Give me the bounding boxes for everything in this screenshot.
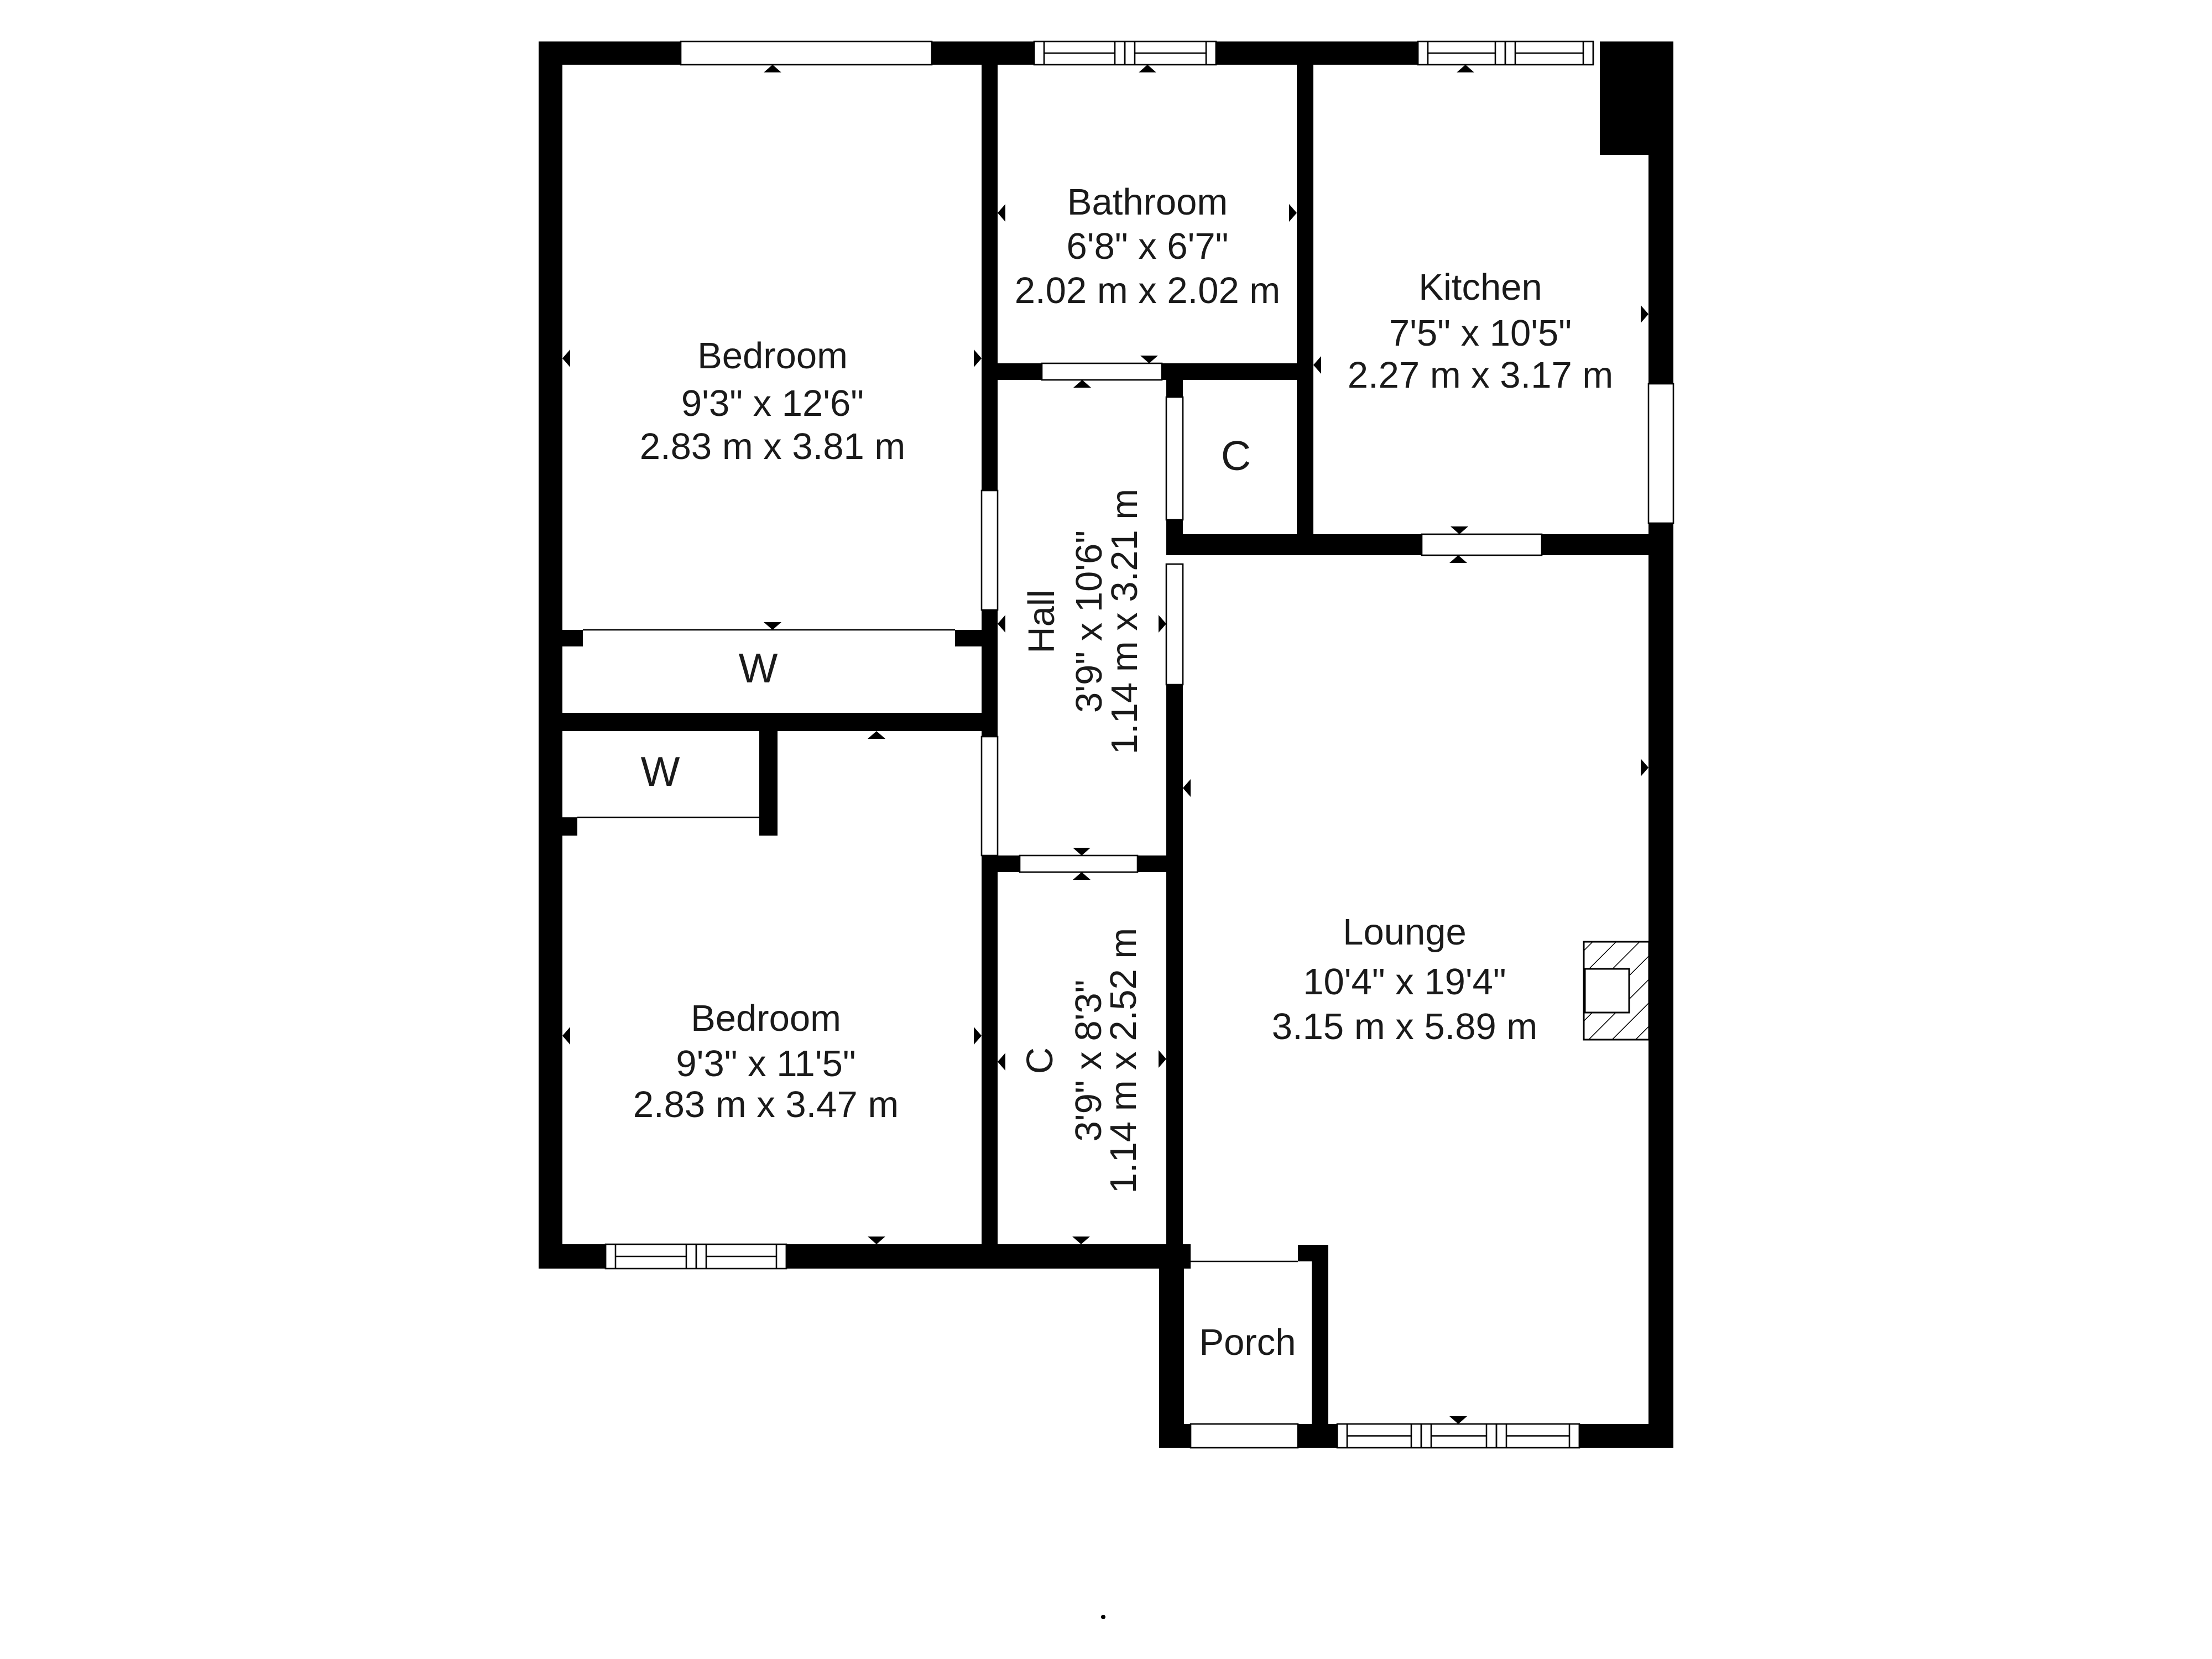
svg-text:2.83 m x 3.81 m: 2.83 m x 3.81 m xyxy=(640,426,905,467)
svg-text:9'3" x 11'5": 9'3" x 11'5" xyxy=(676,1043,855,1084)
svg-text:Hall: Hall xyxy=(1021,589,1062,653)
svg-text:C: C xyxy=(1221,432,1251,479)
svg-text:10'4" x 19'4": 10'4" x 19'4" xyxy=(1303,961,1506,1003)
svg-text:7'5" x 10'5": 7'5" x 10'5" xyxy=(1389,312,1572,354)
svg-text:Bathroom: Bathroom xyxy=(1067,181,1228,223)
svg-text:Kitchen: Kitchen xyxy=(1418,267,1542,308)
svg-text:W: W xyxy=(739,645,778,691)
svg-text:2.02 m x 2.02 m: 2.02 m x 2.02 m xyxy=(1015,270,1280,311)
svg-text:W: W xyxy=(641,748,680,795)
svg-text:2.83 m x 3.47 m: 2.83 m x 3.47 m xyxy=(633,1084,899,1125)
svg-text:Bedroom: Bedroom xyxy=(691,998,841,1039)
svg-text:Porch: Porch xyxy=(1199,1322,1296,1363)
svg-text:1.14 m x 3.21 m: 1.14 m x 3.21 m xyxy=(1104,489,1145,754)
svg-text:9'3" x 12'6": 9'3" x 12'6" xyxy=(681,383,864,424)
svg-text:2.27 m x 3.17 m: 2.27 m x 3.17 m xyxy=(1348,354,1613,396)
svg-text:6'8" x 6'7": 6'8" x 6'7" xyxy=(1067,226,1229,267)
svg-text:Bedroom: Bedroom xyxy=(697,335,848,377)
svg-text:3.15 m x 5.89 m: 3.15 m x 5.89 m xyxy=(1272,1006,1537,1047)
svg-text:Lounge: Lounge xyxy=(1343,911,1467,953)
svg-text:1.14 m x 2.52 m: 1.14 m x 2.52 m xyxy=(1103,928,1144,1193)
svg-text:C: C xyxy=(1019,1047,1061,1074)
